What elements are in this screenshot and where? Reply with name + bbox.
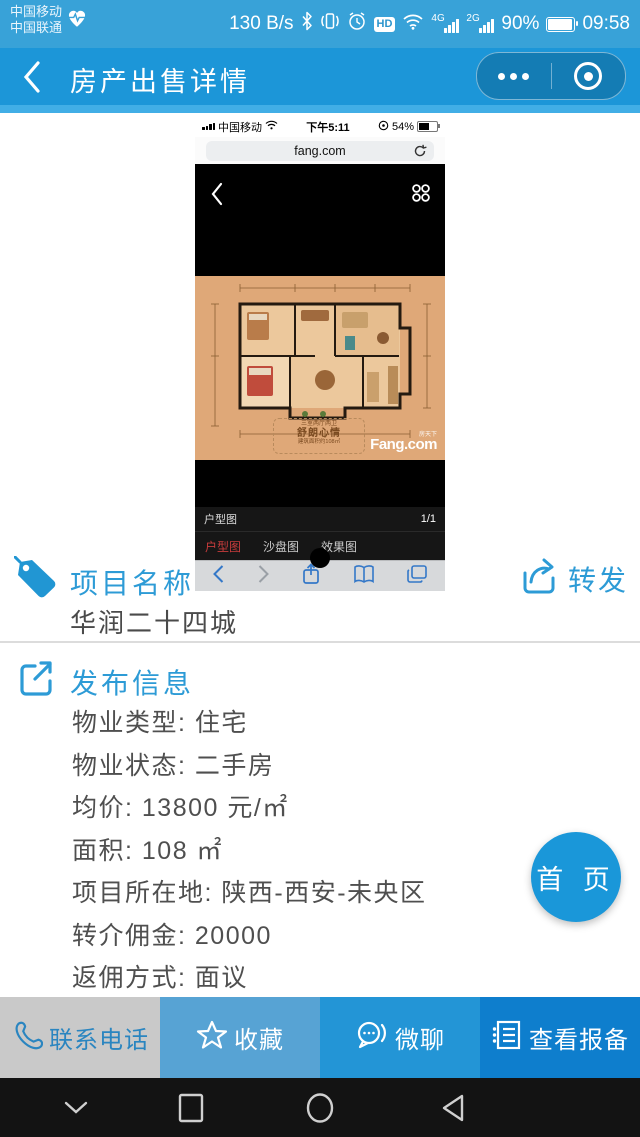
ios-battery-icon [417, 121, 438, 132]
network-speed: 130 B/s [229, 13, 293, 35]
ios-carrier: 中国移动 [218, 119, 262, 135]
battery-icon [546, 17, 575, 32]
back-nav-icon[interactable] [438, 1078, 468, 1137]
floor-plan-image[interactable]: 三室两厅两卫 舒朗心情 建筑面积约108㎡ 房天下 Fang.com [195, 276, 445, 460]
ios-signal-icon [202, 123, 215, 131]
view-report-button[interactable]: 查看报备 [480, 997, 640, 1078]
reload-icon[interactable] [413, 144, 427, 161]
thumbnail-grid-icon[interactable] [410, 182, 432, 209]
ios-battery-percent: 54% [392, 121, 414, 133]
alarm-clock-icon [347, 11, 367, 37]
publish-info-icon [16, 658, 56, 703]
more-menu-icon [498, 73, 529, 80]
info-rows: 物业类型: 住宅 物业状态: 二手房 均价: 13800 元/㎡ 面积: 108… [72, 700, 512, 998]
info-row-rebate-method: 返佣方式: 面议 [72, 955, 512, 998]
android-status-bar: 中国移动 中国联通 130 B/s [0, 0, 640, 48]
rotation-lock-icon [378, 120, 389, 134]
safari-url-row: fang.com [195, 137, 445, 164]
url-text: fang.com [294, 144, 345, 158]
favorite-button[interactable]: 收藏 [160, 997, 320, 1078]
info-row-location: 项目所在地: 陕西-西安-未央区 [72, 870, 512, 913]
safari-tabs-icon[interactable] [406, 564, 428, 589]
signal-4g-icon: 4G [431, 15, 459, 33]
battery-percent: 90% [501, 13, 539, 35]
fang-logo: 房天下 Fang.com [370, 430, 437, 450]
ios-status-bar: 中国移动 下午5:11 54% [195, 116, 445, 137]
viewer-caption: 户型图 [204, 511, 237, 527]
section-divider [0, 641, 640, 643]
plan-rooms-text: 三室两厅两卫 [274, 421, 364, 428]
page-indicator: 1/1 [421, 513, 436, 525]
page-title: 房产出售详情 [70, 60, 250, 99]
plan-watermark: 三室两厅两卫 舒朗心情 建筑面积约108㎡ [273, 418, 365, 454]
safari-bookmarks-icon[interactable] [353, 564, 375, 589]
clock-time: 09:58 [582, 13, 630, 35]
info-row-avg-price: 均价: 13800 元/㎡ [72, 785, 512, 828]
ios-time: 下午5:11 [306, 119, 349, 135]
ios-wifi-icon [265, 120, 278, 133]
photo-viewer: 三室两厅两卫 舒朗心情 建筑面积约108㎡ 房天下 Fang.com 户型图 1… [195, 164, 445, 543]
safari-forward-icon[interactable] [257, 564, 270, 589]
star-icon [196, 1019, 228, 1056]
health-heart-icon [66, 8, 88, 33]
bluetooth-icon [301, 11, 313, 37]
tag-icon [14, 556, 60, 605]
forward-label: 转发 [568, 559, 628, 599]
project-section-title: 项目名称 [70, 562, 194, 602]
safari-back-icon[interactable] [212, 564, 225, 589]
header-bottom-strip [0, 105, 640, 113]
viewer-header [195, 164, 445, 228]
wifi-icon [402, 12, 424, 36]
signal-2g-icon: 2G [466, 15, 494, 33]
more-menu-button[interactable] [477, 53, 551, 99]
miniprogram-capsule [476, 52, 626, 100]
project-name: 华润二十四城 [70, 603, 238, 640]
app-header: 房产出售详情 [0, 48, 640, 105]
tab-floorplan[interactable]: 户型图 [205, 538, 241, 555]
info-row-property-type: 物业类型: 住宅 [72, 700, 512, 743]
close-miniprogram-button[interactable] [552, 53, 626, 99]
chat-bubble-icon [355, 1020, 389, 1055]
hide-navbar-icon[interactable] [62, 1078, 90, 1137]
listing-screenshot-image[interactable]: 中国移动 下午5:11 54% fang.com [195, 116, 445, 543]
info-row-commission: 转介佣金: 20000 [72, 913, 512, 956]
forward-button[interactable]: 转发 [518, 556, 628, 601]
hd-voice-icon: HD [374, 17, 396, 32]
plan-area-text: 建筑面积约108㎡ [274, 439, 364, 446]
info-row-area: 面积: 108 ㎡ [72, 828, 512, 871]
home-fab-button[interactable]: 首 页 [531, 832, 621, 922]
vibrate-icon [320, 11, 340, 37]
recording-dot [310, 548, 330, 568]
viewer-caption-row: 户型图 1/1 [195, 507, 445, 531]
android-nav-bar [0, 1078, 640, 1137]
carrier-name-1: 中国移动 [10, 4, 62, 20]
forward-icon [518, 556, 560, 601]
info-row-property-status: 物业状态: 二手房 [72, 743, 512, 786]
plan-name-text: 舒朗心情 [274, 428, 364, 439]
home-icon[interactable] [304, 1078, 336, 1137]
tab-sandtable[interactable]: 沙盘图 [263, 538, 299, 555]
back-icon[interactable] [22, 60, 42, 99]
url-field[interactable]: fang.com [206, 141, 434, 161]
carrier-name-2: 中国联通 [10, 20, 62, 36]
phone-icon [11, 1019, 43, 1056]
viewer-back-icon[interactable] [210, 182, 224, 211]
recents-icon[interactable] [176, 1078, 206, 1137]
info-section-title: 发布信息 [70, 662, 194, 702]
report-list-icon [491, 1019, 523, 1056]
bottom-action-bar: 联系电话 收藏 微聊 [0, 997, 640, 1078]
contact-phone-button[interactable]: 联系电话 [0, 997, 160, 1078]
close-target-icon [574, 62, 602, 90]
home-fab-label: 首 页 [536, 858, 616, 897]
wechat-chat-button[interactable]: 微聊 [320, 997, 480, 1078]
